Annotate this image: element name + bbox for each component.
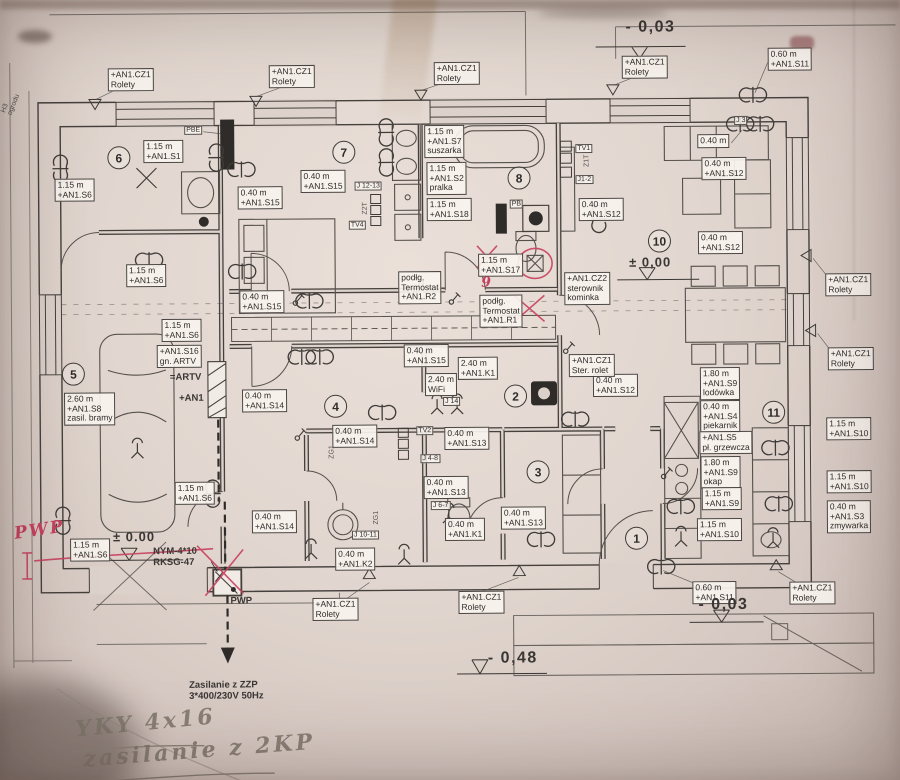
circuit-label-socket: 0.40 m +AN1.S12: [698, 231, 743, 254]
tv-outlet-label: TV1: [575, 144, 592, 153]
junction-label: J 4-8: [420, 454, 440, 463]
circuit-label-suszarka: 1.15 m +AN1.S7 suszarka: [424, 125, 464, 158]
junction-label: ZG1: [328, 445, 335, 459]
level-mark: - 0,48: [488, 649, 538, 667]
circuit-label-socket: 1.15 m +AN1.S10: [827, 470, 872, 493]
circuit-label-artv: +AN1.S16 gn. ARTV: [157, 345, 202, 368]
thermostat-label-crossed: podłg. Termostat +AN1.R1: [479, 294, 523, 327]
circuit-label-rolety: +AN1.CZ1 Rolety: [622, 55, 668, 78]
circuit-label-rolety: +AN1.CZ1 Rolety: [825, 273, 871, 296]
tv-outlet-label: TV2: [416, 426, 433, 435]
circuit-label-socket: 1.15 m +AN1.S18: [427, 198, 472, 221]
circuit-label-socket-crossed: 1.15 m +AN1.S17: [478, 253, 523, 276]
junction-label: J1-2: [576, 175, 594, 184]
cable-label: NYM-4*10 RKSG-47: [153, 547, 197, 569]
circuit-label-socket: 1.15 m +AN1.S10: [697, 518, 742, 541]
circuit-label-socket: 1.15 m +AN1.S10: [826, 417, 871, 440]
circuit-label-socket: 1.15 m +AN1.S1: [143, 140, 183, 163]
circuit-label-socket: 0.40 m +AN1.S13: [424, 476, 469, 499]
junction-label: Z1T: [583, 155, 590, 168]
circuit-label-socket: 1.15 m +AN1.S6: [126, 264, 166, 287]
circuit-label-rolety: +AN1.CZ1 Rolety: [312, 598, 358, 621]
junction-label: J 14: [443, 397, 460, 406]
circuit-label-socket: 1.15 m +AN1.S6: [161, 319, 201, 342]
circuit-label-socket: 0.40 m +AN1.S12: [593, 374, 638, 397]
junction-label: Z2T: [362, 202, 369, 215]
room-number-2: 2: [504, 384, 527, 407]
red-correction-9: 9: [481, 275, 491, 291]
circuit-label-rolety: +AN1.CZ1 Rolety: [108, 68, 154, 91]
circuit-label-brama: 2.60 m +AN1.S8 zasil. bramy: [64, 392, 116, 425]
circuit-label-socket: 0.40 m +AN1.S15: [300, 170, 345, 193]
circuit-label-k1: 2.40 m +AN1.K1: [458, 357, 498, 380]
circuit-label-socket: 0.40 m +AN1.S12: [701, 157, 746, 180]
roller-control-label: +AN1.CZ1 Ster. rolet: [569, 354, 615, 377]
circuit-label-socket: 0.40 m +AN1.S14: [242, 389, 287, 412]
circuit-label-piekarnik: 0.40 m +AN1.S4 piekarnik: [700, 400, 740, 433]
room-number-10: 10: [648, 229, 671, 252]
level-mark: ± 0.00: [113, 529, 155, 544]
supply-label: Zasilanie z ZZP 3*400/230V 50Hz: [189, 680, 264, 702]
circuit-label-k2: 0.40 m +AN1.K2: [335, 548, 375, 571]
circuit-label-zmywarka: 0.40 m +AN1.S3 zmywarka: [827, 500, 871, 533]
level-mark: - 0,03: [625, 18, 675, 36]
wifi-label: 2.40 m WiFi: [425, 373, 457, 396]
fireplace-controller-label: +AN1.CZ2 sterownik kominka: [564, 272, 610, 305]
pwp-handwriting-red: PWP: [13, 517, 66, 544]
circuit-label-socket: 0.40 m +AN1.S12: [579, 198, 624, 221]
board-label-artv: =ARTV: [170, 373, 201, 384]
tv-outlet-label: TV4: [349, 221, 366, 230]
plan-sheet: +AN1.CZ1 Rolety+AN1.CZ1 Rolety+AN1.CZ1 R…: [0, 0, 900, 780]
circuit-label-socket: 0.40 m +AN1.S14: [332, 425, 377, 448]
circuit-label-socket: 0.40 m +AN1.S13: [444, 427, 489, 450]
circuit-label-socket: 1.15 m +AN1.S6: [70, 538, 110, 561]
room-number-1: 1: [625, 527, 648, 550]
junction-label: J 12-13: [355, 181, 382, 191]
circuit-label-socket: 0.40 m +AN1.S13: [501, 506, 546, 529]
circuit-label-socket: 0.60 m +AN1.S11: [768, 47, 813, 70]
junction-label: J 3: [734, 116, 747, 125]
annotation-layer: +AN1.CZ1 Rolety+AN1.CZ1 Rolety+AN1.CZ1 R…: [0, 0, 900, 780]
room-number-11: 11: [762, 401, 785, 424]
level-mark: ± 0,00: [629, 254, 671, 269]
circuit-label-socket: 0.40 m +AN1.S15: [239, 290, 284, 313]
pwp-label: PWP: [230, 596, 252, 607]
thermostat-label: podłg. Termostat +AN1.R2: [398, 271, 442, 304]
circuit-label-plyta: +AN1.S5 pł. grzewcza: [699, 431, 752, 454]
circuit-label-rolety: +AN1.CZ1 Rolety: [458, 591, 504, 614]
circuit-label-rolety: +AN1.CZ1 Rolety: [789, 581, 835, 604]
board-label-an1: +AN1: [179, 394, 204, 405]
circuit-label-socket: 1.15 m +AN1.S9: [702, 487, 742, 510]
circuit-label-rolety: +AN1.CZ1 Rolety: [269, 65, 315, 88]
room-number-5: 5: [62, 363, 85, 386]
pencil-note-cable: YKY 4x16: [74, 703, 216, 742]
room-number-3: 3: [526, 460, 549, 483]
room-number-4: 4: [324, 395, 347, 418]
circuit-label-socket: 0.40 m: [697, 134, 729, 148]
room-number-7: 7: [332, 141, 355, 164]
junction-label: J 6-7: [431, 501, 451, 510]
circuit-label-okap: 1.80 m +AN1.S9 okap: [700, 456, 740, 489]
circuit-label-k1: 0.40 m +AN1.K1: [445, 518, 485, 541]
level-mark: - 0,03: [698, 596, 748, 614]
circuit-label-rolety: +AN1.CZ1 Rolety: [434, 62, 480, 85]
circuit-label-socket: 0.40 m +AN1.S14: [252, 510, 297, 533]
circuit-label-pralka: 1.15 m +AN1.S2 pralka: [426, 162, 466, 195]
pbe-label: PBE: [184, 126, 202, 135]
circuit-label-socket: 0.40 m +AN1.S15: [238, 186, 283, 209]
circuit-label-socket: 1.15 m +AN1.S6: [175, 482, 215, 505]
circuit-label-lodowka: 1.80 m +AN1.S9 lodówka: [700, 367, 740, 400]
room-number-6: 6: [107, 146, 130, 169]
pb-label: PB: [510, 199, 523, 208]
circuit-label-rolety: +AN1.CZ1 Rolety: [828, 347, 874, 370]
photographed-floor-plan: +AN1.CZ1 Rolety+AN1.CZ1 Rolety+AN1.CZ1 R…: [0, 0, 900, 780]
garden-circuit-label: H3 ogrodu: [0, 91, 22, 117]
junction-label: J 10-11: [352, 531, 379, 541]
circuit-label-socket: 0.40 m +AN1.S15: [404, 344, 449, 367]
room-number-8: 8: [507, 166, 530, 189]
circuit-label-socket: 1.15 m +AN1.S6: [55, 178, 95, 201]
junction-label: ZG1: [373, 511, 380, 525]
